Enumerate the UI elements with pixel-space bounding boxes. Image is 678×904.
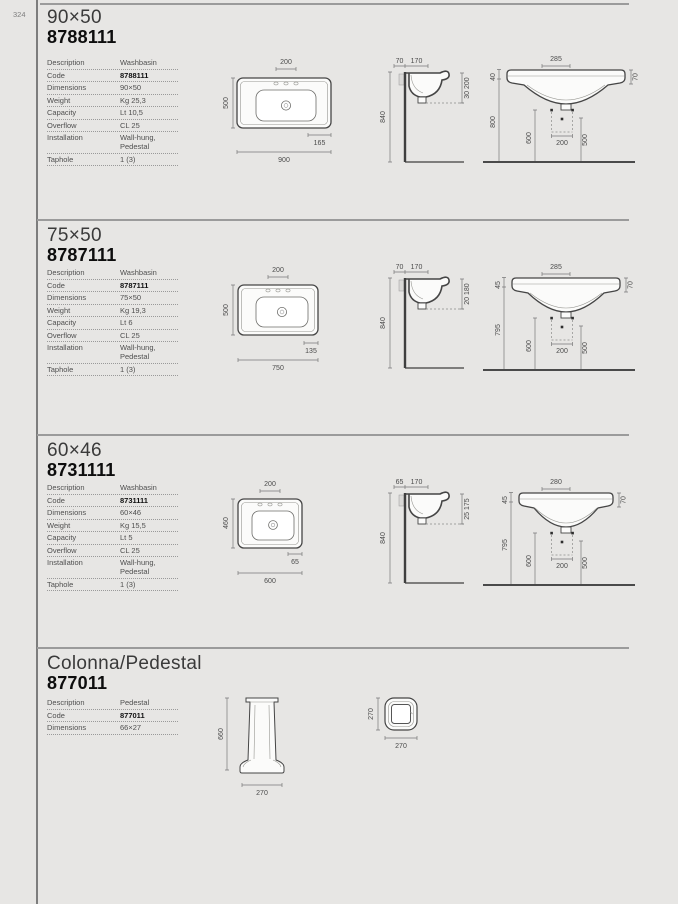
pedestal-front-drawing: 660 270 [217,685,307,810]
spec-value: Kg 25,3 [120,96,178,105]
dim-pedestal-width: 270 [256,790,268,797]
spec-row: Dimensions60×46 [47,507,178,520]
spec-label: Description [47,58,120,67]
dim-right-height: 500 [582,134,589,146]
spec-table: DescriptionWashbasin Code8787111 Dimensi… [47,267,178,376]
dim-rim-thickness: 45 [495,281,502,289]
dim-left-height: 600 [526,340,533,352]
plan-view-drawing-9050: 200 500 165 900 [222,52,347,170]
spec-value: 1 (3) [120,580,178,589]
dim-rim-height: 795 [495,324,502,336]
section-title: Colonna/Pedestal [47,654,202,674]
page-number: 324 [13,10,26,19]
spec-row: CapacityLt 10,5 [47,107,178,120]
spec-label: Weight [47,96,120,105]
spec-value: Washbasin [120,483,178,492]
pedestal-plan-drawing: 270 270 [365,685,435,765]
spec-label: Overflow [47,331,120,340]
spec-label: Description [47,698,120,707]
section-code: 877011 [47,674,202,693]
spec-row: Code877011 [47,710,178,723]
spec-value: 90×50 [120,83,178,92]
spec-table: DescriptionWashbasin Code8731111 Dimensi… [47,482,178,591]
dim-bolt-span: 200 [556,563,568,570]
spec-value: Lt 10,5 [120,108,178,117]
section-separator-1 [37,219,629,221]
spec-label: Weight [47,521,120,530]
spec-table: DescriptionPedestal Code877011 Dimension… [47,697,178,735]
side-view-drawing-6046: 65 170 840 25 175 [378,477,478,599]
dim-depth: 500 [223,304,230,316]
spec-row: Code8731111 [47,495,178,508]
spec-value: CL 25 [120,331,178,340]
dim-height: 840 [380,317,387,329]
dim-tap-span: 200 [272,267,284,274]
side-view-drawing-9050: 70 170 840 30 200 [378,56,478,178]
spec-label: Dimensions [47,508,120,517]
dim-rim-height: 795 [502,539,509,551]
dim-rim-height: 800 [490,116,497,128]
spec-row: Dimensions66×27 [47,722,178,735]
dim-depth: 500 [223,97,230,109]
dim-front-width: 280 [550,479,562,486]
section-code: 8788111 [47,28,117,47]
spec-value: Washbasin [120,58,178,67]
spec-value: Kg 15,5 [120,521,178,530]
spec-value: 877011 [120,711,178,720]
spec-row: WeightKg 19,3 [47,305,178,318]
spec-label: Code [47,496,120,505]
spec-label: Code [47,711,120,720]
spec-label: Code [47,281,120,290]
spec-label: Capacity [47,108,120,117]
spec-value: Wall-hung, Pedestal [120,133,178,151]
dim-right-height: 500 [582,342,589,354]
spec-label: Dimensions [47,293,120,302]
spec-value: 8788111 [120,71,178,80]
plan-view-drawing-7550: 200 500 135 750 [222,260,347,378]
spec-label: Installation [47,558,120,576]
spec-row: CapacityLt 5 [47,532,178,545]
dim-plan-width: 270 [395,743,407,750]
spec-row: Code8787111 [47,280,178,293]
dim-width: 600 [264,578,276,585]
dim-projection: 170 [411,58,423,65]
section-title: 90×50 [47,8,117,28]
spec-value: Wall-hung, Pedestal [120,343,178,361]
spec-value: 1 (3) [120,365,178,374]
spec-row: InstallationWall-hung, Pedestal [47,342,178,364]
spec-row: CapacityLt 6 [47,317,178,330]
spec-value: CL 25 [120,546,178,555]
spec-value: Lt 5 [120,533,178,542]
section-title: 75×50 [47,226,117,246]
spec-label: Description [47,268,120,277]
spec-row: Code8788111 [47,70,178,83]
spec-row: OverflowCL 25 [47,330,178,343]
dim-bolt-span: 200 [556,140,568,147]
front-view-drawing-9050: 285 40 800 70 200 600 500 [465,52,640,170]
dim-height: 840 [380,111,387,123]
spec-label: Dimensions [47,723,120,732]
dim-offset: 165 [314,140,326,147]
dim-offset: 65 [291,559,299,566]
dim-wall-offset: 70 [396,264,404,271]
dim-pedestal-height: 660 [218,728,225,740]
dim-front-width: 285 [550,264,562,271]
front-view-drawing-7550: 285 45 795 70 200 600 500 [465,260,640,378]
spec-value: Kg 19,3 [120,306,178,315]
spec-label: Overflow [47,546,120,555]
spec-value: 66×27 [120,723,178,732]
spec-label: Capacity [47,318,120,327]
dim-edge-thickness: 70 [628,281,635,289]
spec-value: 1 (3) [120,155,178,164]
spec-label: Taphole [47,155,120,164]
spec-value: Pedestal [120,698,178,707]
dim-left-height: 600 [526,132,533,144]
spec-value: 8787111 [120,281,178,290]
dim-wall-offset: 70 [396,58,404,65]
dim-rim-thickness: 45 [502,496,509,504]
plan-view-drawing-6046: 200 460 65 600 [222,475,347,593]
spec-label: Taphole [47,580,120,589]
top-rule [40,3,629,5]
dim-width: 900 [278,157,290,164]
spec-value: Lt 6 [120,318,178,327]
section-header-pedestal: Colonna/Pedestal 877011 [47,654,202,693]
dim-projection: 170 [411,479,423,486]
dim-bolt-span: 200 [556,348,568,355]
spec-label: Installation [47,343,120,361]
spec-row: WeightKg 25,3 [47,95,178,108]
front-view-drawing-6046: 280 45 795 70 200 600 500 [465,475,640,593]
section-header-7550: 75×50 8787111 [47,226,117,265]
dim-depth: 460 [223,517,230,529]
spec-row: InstallationWall-hung, Pedestal [47,557,178,579]
spec-row: WeightKg 15,5 [47,520,178,533]
section-header-9050: 90×50 8788111 [47,8,117,47]
left-margin-rule [36,0,38,904]
dim-height: 840 [380,532,387,544]
spec-row: InstallationWall-hung, Pedestal [47,132,178,154]
spec-label: Code [47,71,120,80]
spec-label: Overflow [47,121,120,130]
dim-projection: 170 [411,264,423,271]
dim-front-width: 285 [550,56,562,63]
spec-label: Installation [47,133,120,151]
section-separator-2 [37,434,629,436]
dim-tap-span: 200 [264,481,276,488]
spec-row: OverflowCL 25 [47,120,178,133]
spec-row: DescriptionPedestal [47,697,178,710]
spec-label: Dimensions [47,83,120,92]
spec-table: DescriptionWashbasin Code8788111 Dimensi… [47,57,178,166]
spec-row: Taphole1 (3) [47,364,178,377]
spec-row: OverflowCL 25 [47,545,178,558]
dim-plan-depth: 270 [368,708,375,720]
dim-edge-thickness: 70 [633,73,640,81]
spec-row: Dimensions90×50 [47,82,178,95]
dim-tap-span: 200 [280,59,292,66]
section-code: 8731111 [47,461,116,480]
section-header-6046: 60×46 8731111 [47,441,116,480]
section-code: 8787111 [47,246,117,265]
dim-edge-thickness: 70 [621,496,628,504]
spec-row: Taphole1 (3) [47,154,178,167]
side-view-drawing-7550: 70 170 840 20 180 [378,262,478,384]
section-title: 60×46 [47,441,116,461]
spec-value: CL 25 [120,121,178,130]
spec-value: Wall-hung, Pedestal [120,558,178,576]
spec-row: DescriptionWashbasin [47,482,178,495]
dim-offset: 135 [305,348,317,355]
spec-label: Capacity [47,533,120,542]
spec-row: Dimensions75×50 [47,292,178,305]
section-separator-3 [37,647,629,649]
dim-width: 750 [272,365,284,372]
spec-value: 8731111 [120,496,178,505]
dim-rim-thickness: 40 [490,73,497,81]
spec-value: 75×50 [120,293,178,302]
spec-value: Washbasin [120,268,178,277]
dim-wall-offset: 65 [396,479,404,486]
spec-row: DescriptionWashbasin [47,267,178,280]
spec-label: Weight [47,306,120,315]
spec-row: Taphole1 (3) [47,579,178,592]
spec-label: Description [47,483,120,492]
spec-value: 60×46 [120,508,178,517]
dim-left-height: 600 [526,555,533,567]
spec-row: DescriptionWashbasin [47,57,178,70]
dim-right-height: 500 [582,557,589,569]
spec-label: Taphole [47,365,120,374]
